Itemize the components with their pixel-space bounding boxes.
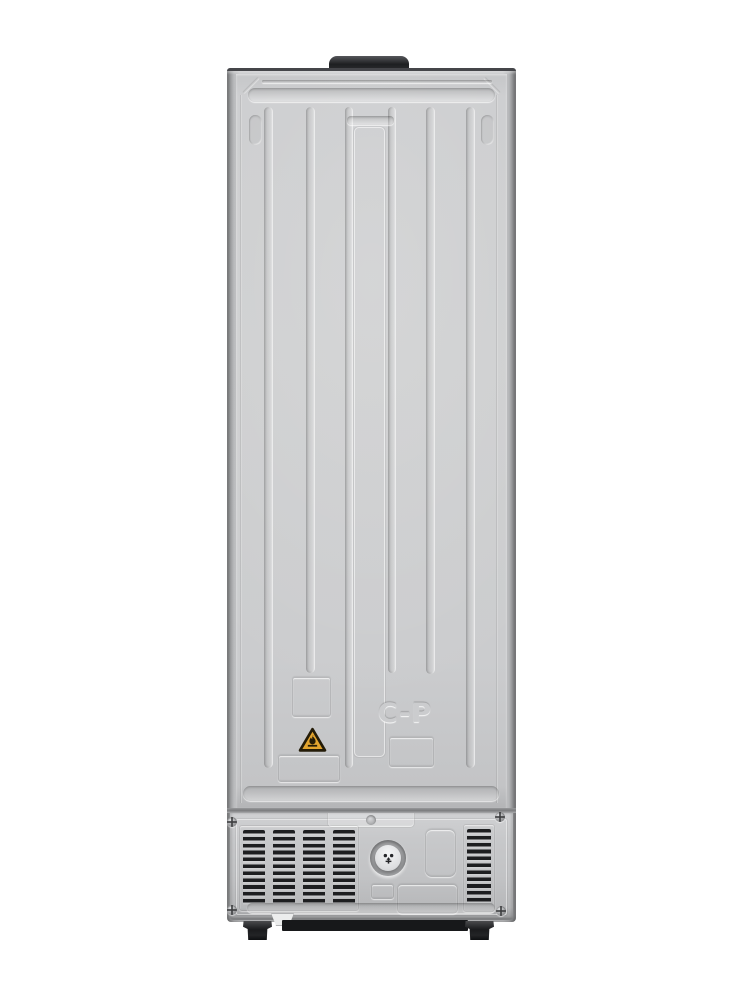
- emboss-rect-left: [278, 755, 340, 782]
- top-pill-groove: [248, 88, 495, 102]
- drain-valve-icon: [380, 850, 397, 867]
- top-crease-line: [262, 80, 492, 83]
- embossed-rib-2: [306, 107, 315, 673]
- emboss-tall-rect: [425, 829, 456, 877]
- vent-column-4: [333, 830, 355, 906]
- vent-column-5: [467, 829, 491, 905]
- center-channel-outline: [354, 127, 385, 757]
- panel-left-crease: [240, 95, 242, 803]
- screw-bottom-right: [496, 906, 506, 916]
- compressor-shadow: [282, 920, 468, 931]
- screw-top-right: [495, 812, 505, 822]
- vent-column-1: [243, 830, 265, 906]
- foot-left: [243, 921, 272, 940]
- screw-top-left: [227, 817, 237, 827]
- cover-bottom-groove: [247, 903, 495, 913]
- emboss-rect-right: [389, 737, 434, 767]
- vent-column-3: [303, 830, 325, 906]
- emboss-small-rect: [371, 884, 394, 899]
- embossed-rib-1: [264, 107, 273, 768]
- panel-marking: C-P: [372, 697, 438, 731]
- vent-column-2: [273, 830, 295, 906]
- rib-bridge-groove: [347, 116, 394, 125]
- bottom-pill-groove: [243, 786, 499, 801]
- photo-background: C-P: [0, 0, 743, 1000]
- embossed-rib-3: [345, 107, 353, 768]
- flammable-warning-sticker: [298, 727, 327, 753]
- flame-warning-icon: [298, 727, 327, 753]
- screw-bottom-left: [227, 905, 237, 915]
- side-channel-right: [481, 115, 494, 145]
- embossed-rib-6: [466, 107, 475, 768]
- bracket-hole: [366, 815, 376, 825]
- foot-right: [465, 921, 494, 940]
- emboss-square: [292, 677, 331, 717]
- embossed-rib-5: [426, 107, 435, 674]
- embossed-rib-4: [388, 107, 396, 673]
- panel-right-crease: [496, 95, 498, 803]
- side-channel-left: [249, 115, 262, 145]
- drain-valve-face: [375, 845, 401, 871]
